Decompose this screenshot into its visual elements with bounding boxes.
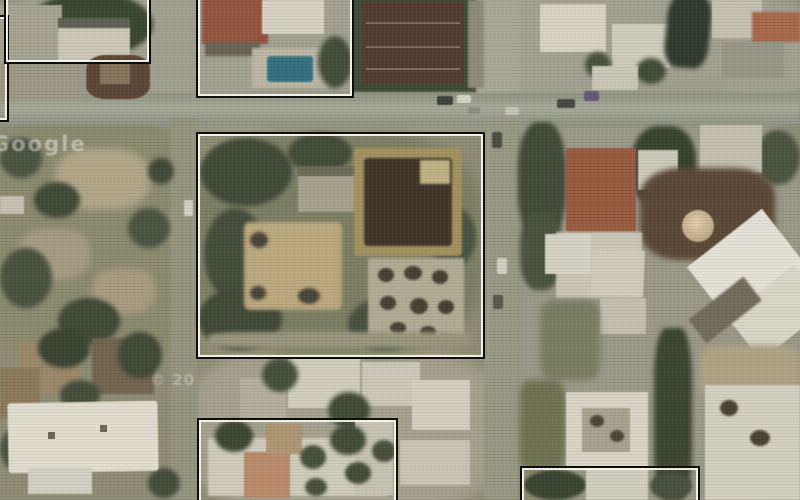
box-top-left [4,0,151,64]
box-bottom-middle [197,418,398,500]
box-central-compound [196,132,485,359]
box-top-middle [196,0,354,98]
watermark-copyright: © 20 [150,371,195,389]
box-bottom-right [520,466,700,500]
watermark-imagery-brand: Google [0,132,87,156]
satellite-map-canvas[interactable]: Google © 20 [0,0,800,500]
annotation-layer [0,0,800,500]
